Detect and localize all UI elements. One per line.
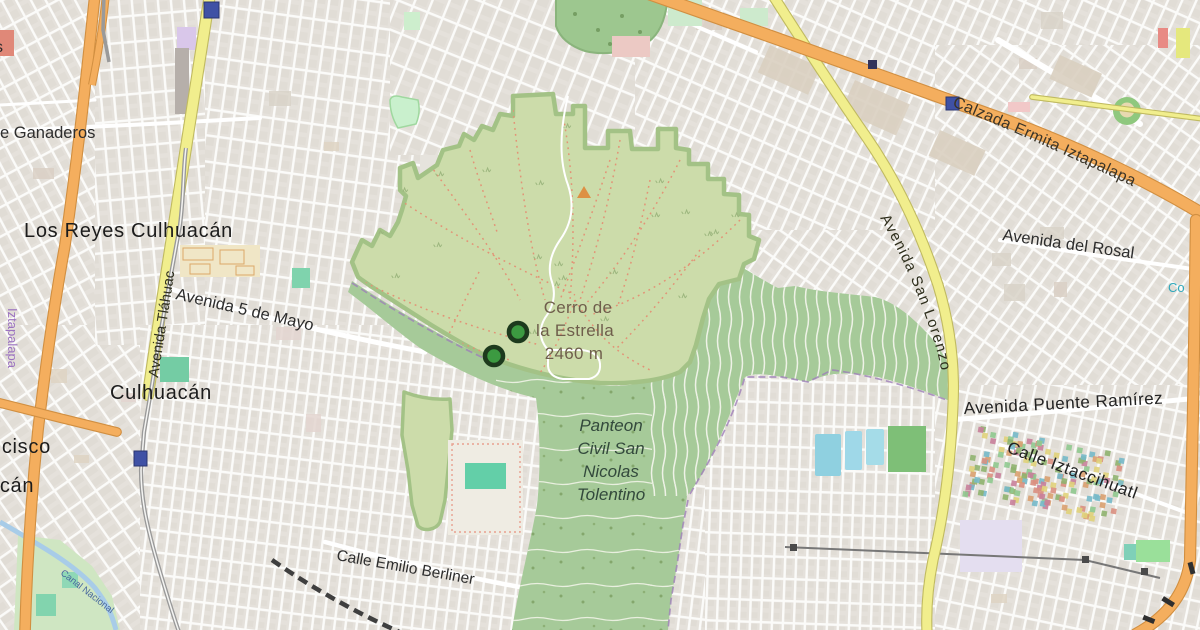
svg-text:Panteon: Panteon [579,416,642,435]
svg-text:la Estrella: la Estrella [536,321,614,340]
svg-text:Culhuacán: Culhuacán [110,382,212,404]
svg-text:Co: Co [1168,280,1185,295]
svg-text:Civil San: Civil San [577,439,644,458]
svg-text:Tolentino: Tolentino [577,485,645,504]
svg-text:Nicolas: Nicolas [583,462,639,481]
svg-text:Iztapalapa: Iztapalapa [5,308,20,369]
svg-text:ncisco: ncisco [0,436,51,458]
svg-text:e Ganaderos: e Ganaderos [0,124,95,142]
svg-text:Los Reyes Culhuacán: Los Reyes Culhuacán [24,220,233,242]
svg-text:s: s [0,39,3,56]
svg-text:Cerro de: Cerro de [544,298,613,317]
svg-text:2460 m: 2460 m [545,344,604,363]
svg-text:acán: acán [0,475,34,497]
